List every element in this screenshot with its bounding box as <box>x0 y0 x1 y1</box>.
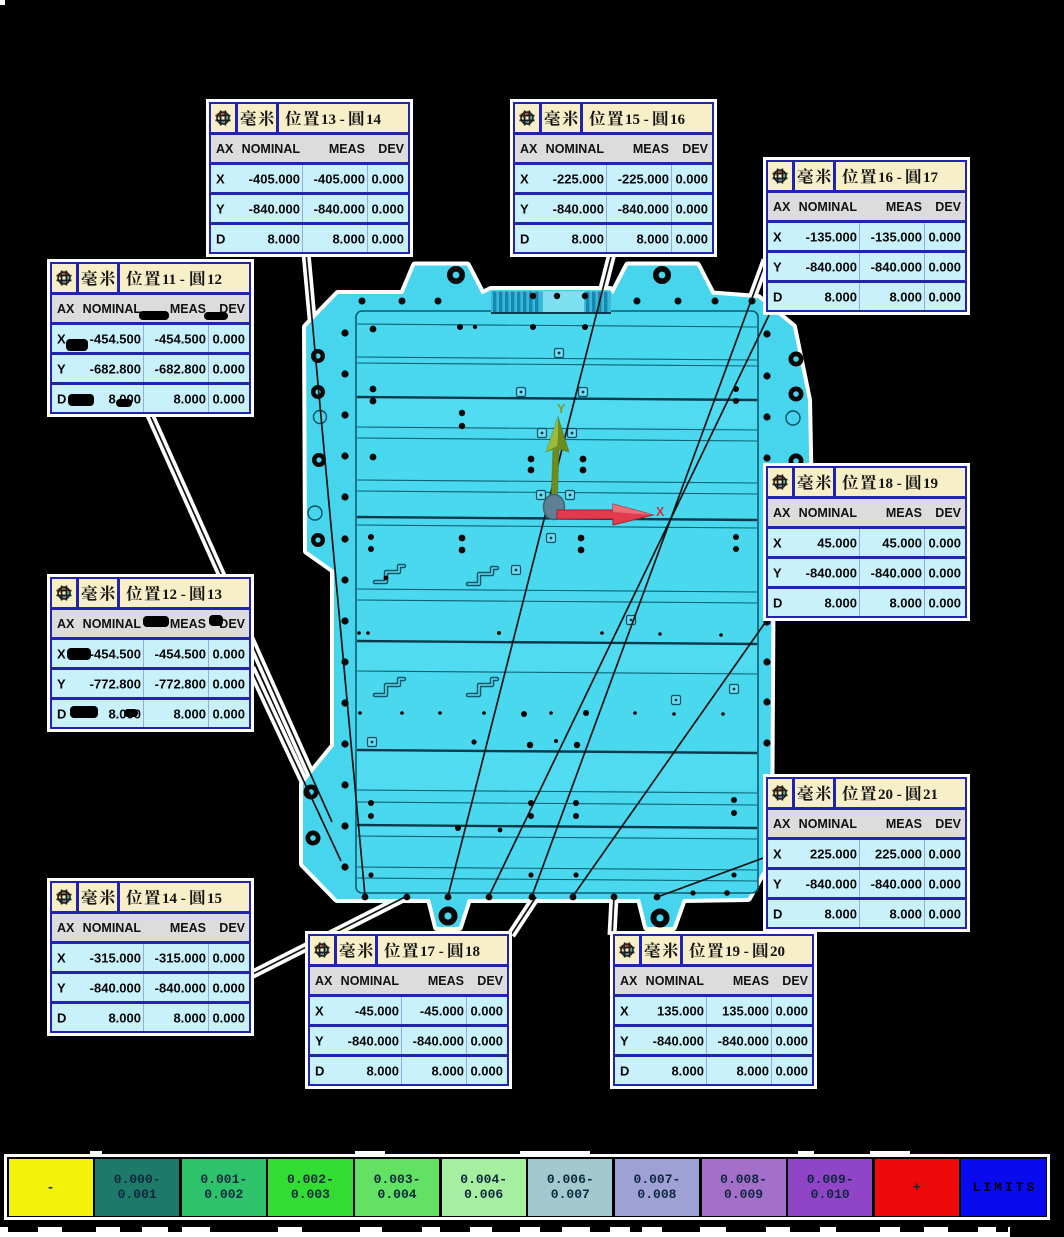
svg-text:17: 17 <box>923 170 939 186</box>
svg-text:18 -: 18 - <box>878 476 902 492</box>
svg-text:19 -: 19 - <box>725 944 749 960</box>
svg-text:18: 18 <box>465 944 480 960</box>
svg-text:12: 12 <box>207 272 222 288</box>
svg-text:16: 16 <box>670 112 686 128</box>
svg-text:15: 15 <box>207 891 222 907</box>
svg-text:13 -: 13 - <box>321 112 345 128</box>
svg-text:13: 13 <box>207 587 222 603</box>
svg-text:12 -: 12 - <box>162 587 186 603</box>
svg-text:14: 14 <box>366 112 382 128</box>
svg-text:15 -: 15 - <box>625 112 649 128</box>
svg-text:14 -: 14 - <box>162 891 186 907</box>
svg-text:Y: Y <box>557 402 566 416</box>
svg-text:X: X <box>656 505 665 519</box>
svg-text:21: 21 <box>923 787 938 803</box>
svg-text:11 -: 11 - <box>162 272 185 288</box>
svg-text:20: 20 <box>770 944 785 960</box>
svg-text:20 -: 20 - <box>878 787 902 803</box>
svg-text:19: 19 <box>923 476 938 492</box>
svg-text:17 -: 17 - <box>420 944 444 960</box>
svg-text:16 -: 16 - <box>878 170 902 186</box>
